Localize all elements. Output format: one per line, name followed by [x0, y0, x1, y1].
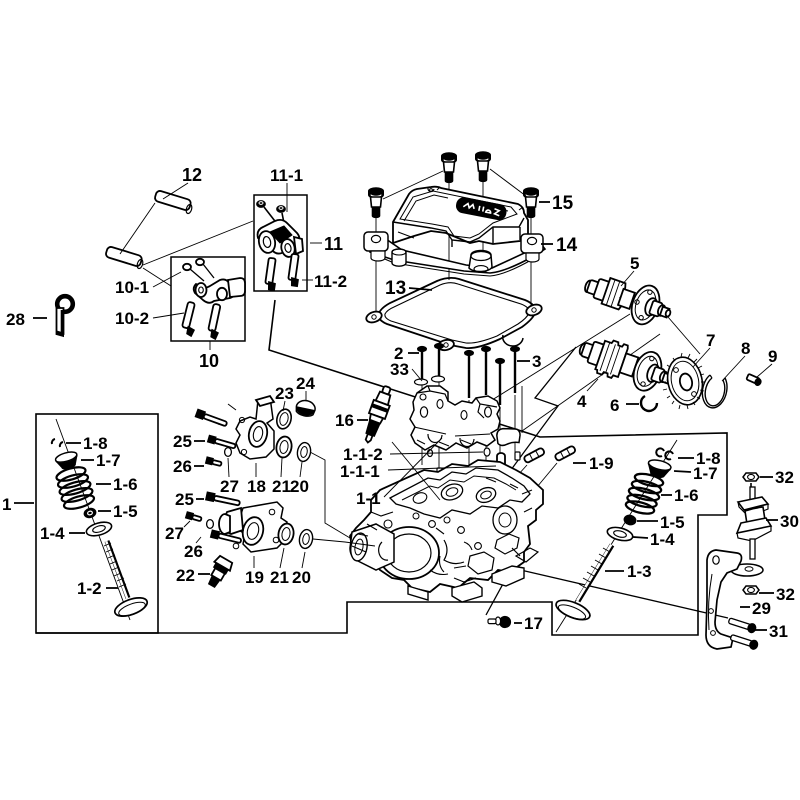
- svg-text:25: 25: [175, 490, 194, 509]
- svg-text:20: 20: [292, 568, 311, 587]
- svg-text:1-9: 1-9: [589, 454, 614, 473]
- svg-text:1-7: 1-7: [693, 464, 718, 483]
- svg-text:11-1: 11-1: [270, 166, 303, 185]
- svg-text:10: 10: [199, 351, 219, 371]
- svg-text:18: 18: [247, 477, 266, 496]
- svg-text:1-7: 1-7: [96, 451, 121, 470]
- svg-text:30: 30: [780, 512, 799, 531]
- svg-text:27: 27: [165, 524, 184, 543]
- svg-text:9: 9: [768, 347, 777, 366]
- svg-text:1-2: 1-2: [77, 579, 102, 598]
- svg-text:14: 14: [556, 235, 578, 256]
- svg-text:23: 23: [275, 384, 294, 403]
- svg-text:26: 26: [173, 457, 192, 476]
- svg-text:6: 6: [610, 396, 619, 415]
- svg-text:1-3: 1-3: [627, 562, 652, 581]
- svg-text:1-5: 1-5: [113, 502, 138, 521]
- svg-text:29: 29: [752, 599, 771, 618]
- svg-text:26: 26: [184, 542, 203, 561]
- svg-text:33: 33: [390, 360, 409, 379]
- svg-text:19: 19: [245, 568, 264, 587]
- svg-text:1: 1: [2, 495, 11, 514]
- svg-text:24: 24: [296, 374, 315, 393]
- svg-text:12: 12: [182, 165, 202, 185]
- svg-text:15: 15: [552, 193, 574, 214]
- svg-text:3: 3: [532, 352, 541, 371]
- svg-text:8: 8: [741, 339, 750, 358]
- svg-text:32: 32: [775, 468, 794, 487]
- svg-text:5: 5: [630, 254, 639, 273]
- svg-text:32: 32: [776, 585, 795, 604]
- svg-text:1-4: 1-4: [650, 530, 675, 549]
- svg-text:1-1-1: 1-1-1: [340, 462, 380, 481]
- svg-text:28: 28: [6, 310, 25, 329]
- svg-text:11-2: 11-2: [314, 272, 347, 291]
- svg-text:20: 20: [290, 477, 309, 496]
- svg-text:25: 25: [173, 432, 192, 451]
- svg-text:11: 11: [324, 234, 343, 254]
- svg-text:17: 17: [524, 614, 543, 633]
- svg-text:22: 22: [176, 566, 195, 585]
- svg-text:1-6: 1-6: [113, 475, 138, 494]
- svg-text:1-4: 1-4: [40, 524, 65, 543]
- svg-text:1-1: 1-1: [356, 489, 381, 508]
- svg-text:4: 4: [577, 392, 587, 411]
- svg-text:21: 21: [272, 477, 291, 496]
- svg-text:27: 27: [220, 477, 239, 496]
- svg-text:1-6: 1-6: [674, 486, 699, 505]
- svg-text:10-2: 10-2: [115, 309, 149, 328]
- svg-text:7: 7: [706, 331, 715, 350]
- svg-text:21: 21: [270, 568, 289, 587]
- svg-text:10-1: 10-1: [115, 278, 149, 297]
- svg-text:13: 13: [385, 278, 406, 299]
- svg-text:16: 16: [335, 411, 354, 430]
- svg-text:31: 31: [769, 622, 788, 641]
